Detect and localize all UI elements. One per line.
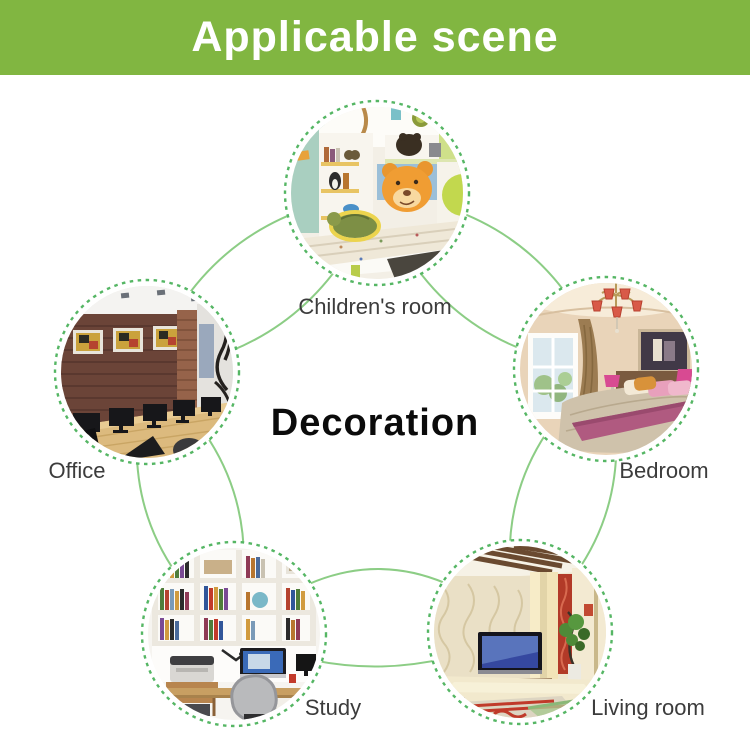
scene-label-office: Office bbox=[48, 459, 105, 483]
study-illustration bbox=[148, 548, 320, 720]
center-title: Decoration bbox=[271, 402, 479, 445]
bedroom-illustration bbox=[520, 283, 692, 455]
header-banner: Applicable scene bbox=[0, 0, 750, 75]
living-room-illustration bbox=[434, 546, 606, 718]
children-room-illustration bbox=[291, 107, 463, 279]
applicable-scene-poster: Applicable scene Children's room Office … bbox=[0, 0, 750, 750]
scene-label-living: Living room bbox=[591, 696, 705, 720]
office-illustration bbox=[61, 286, 233, 458]
scene-photo-office bbox=[61, 286, 233, 458]
scene-photo-living bbox=[434, 546, 606, 718]
scene-photo-study bbox=[148, 548, 320, 720]
scene-photo-children bbox=[291, 107, 463, 279]
scene-label-study: Study bbox=[305, 696, 361, 720]
scene-label-children: Children's room bbox=[298, 295, 451, 319]
header-title: Applicable scene bbox=[191, 13, 558, 62]
scene-label-bedroom: Bedroom bbox=[619, 459, 708, 483]
scene-photo-bedroom bbox=[520, 283, 692, 455]
